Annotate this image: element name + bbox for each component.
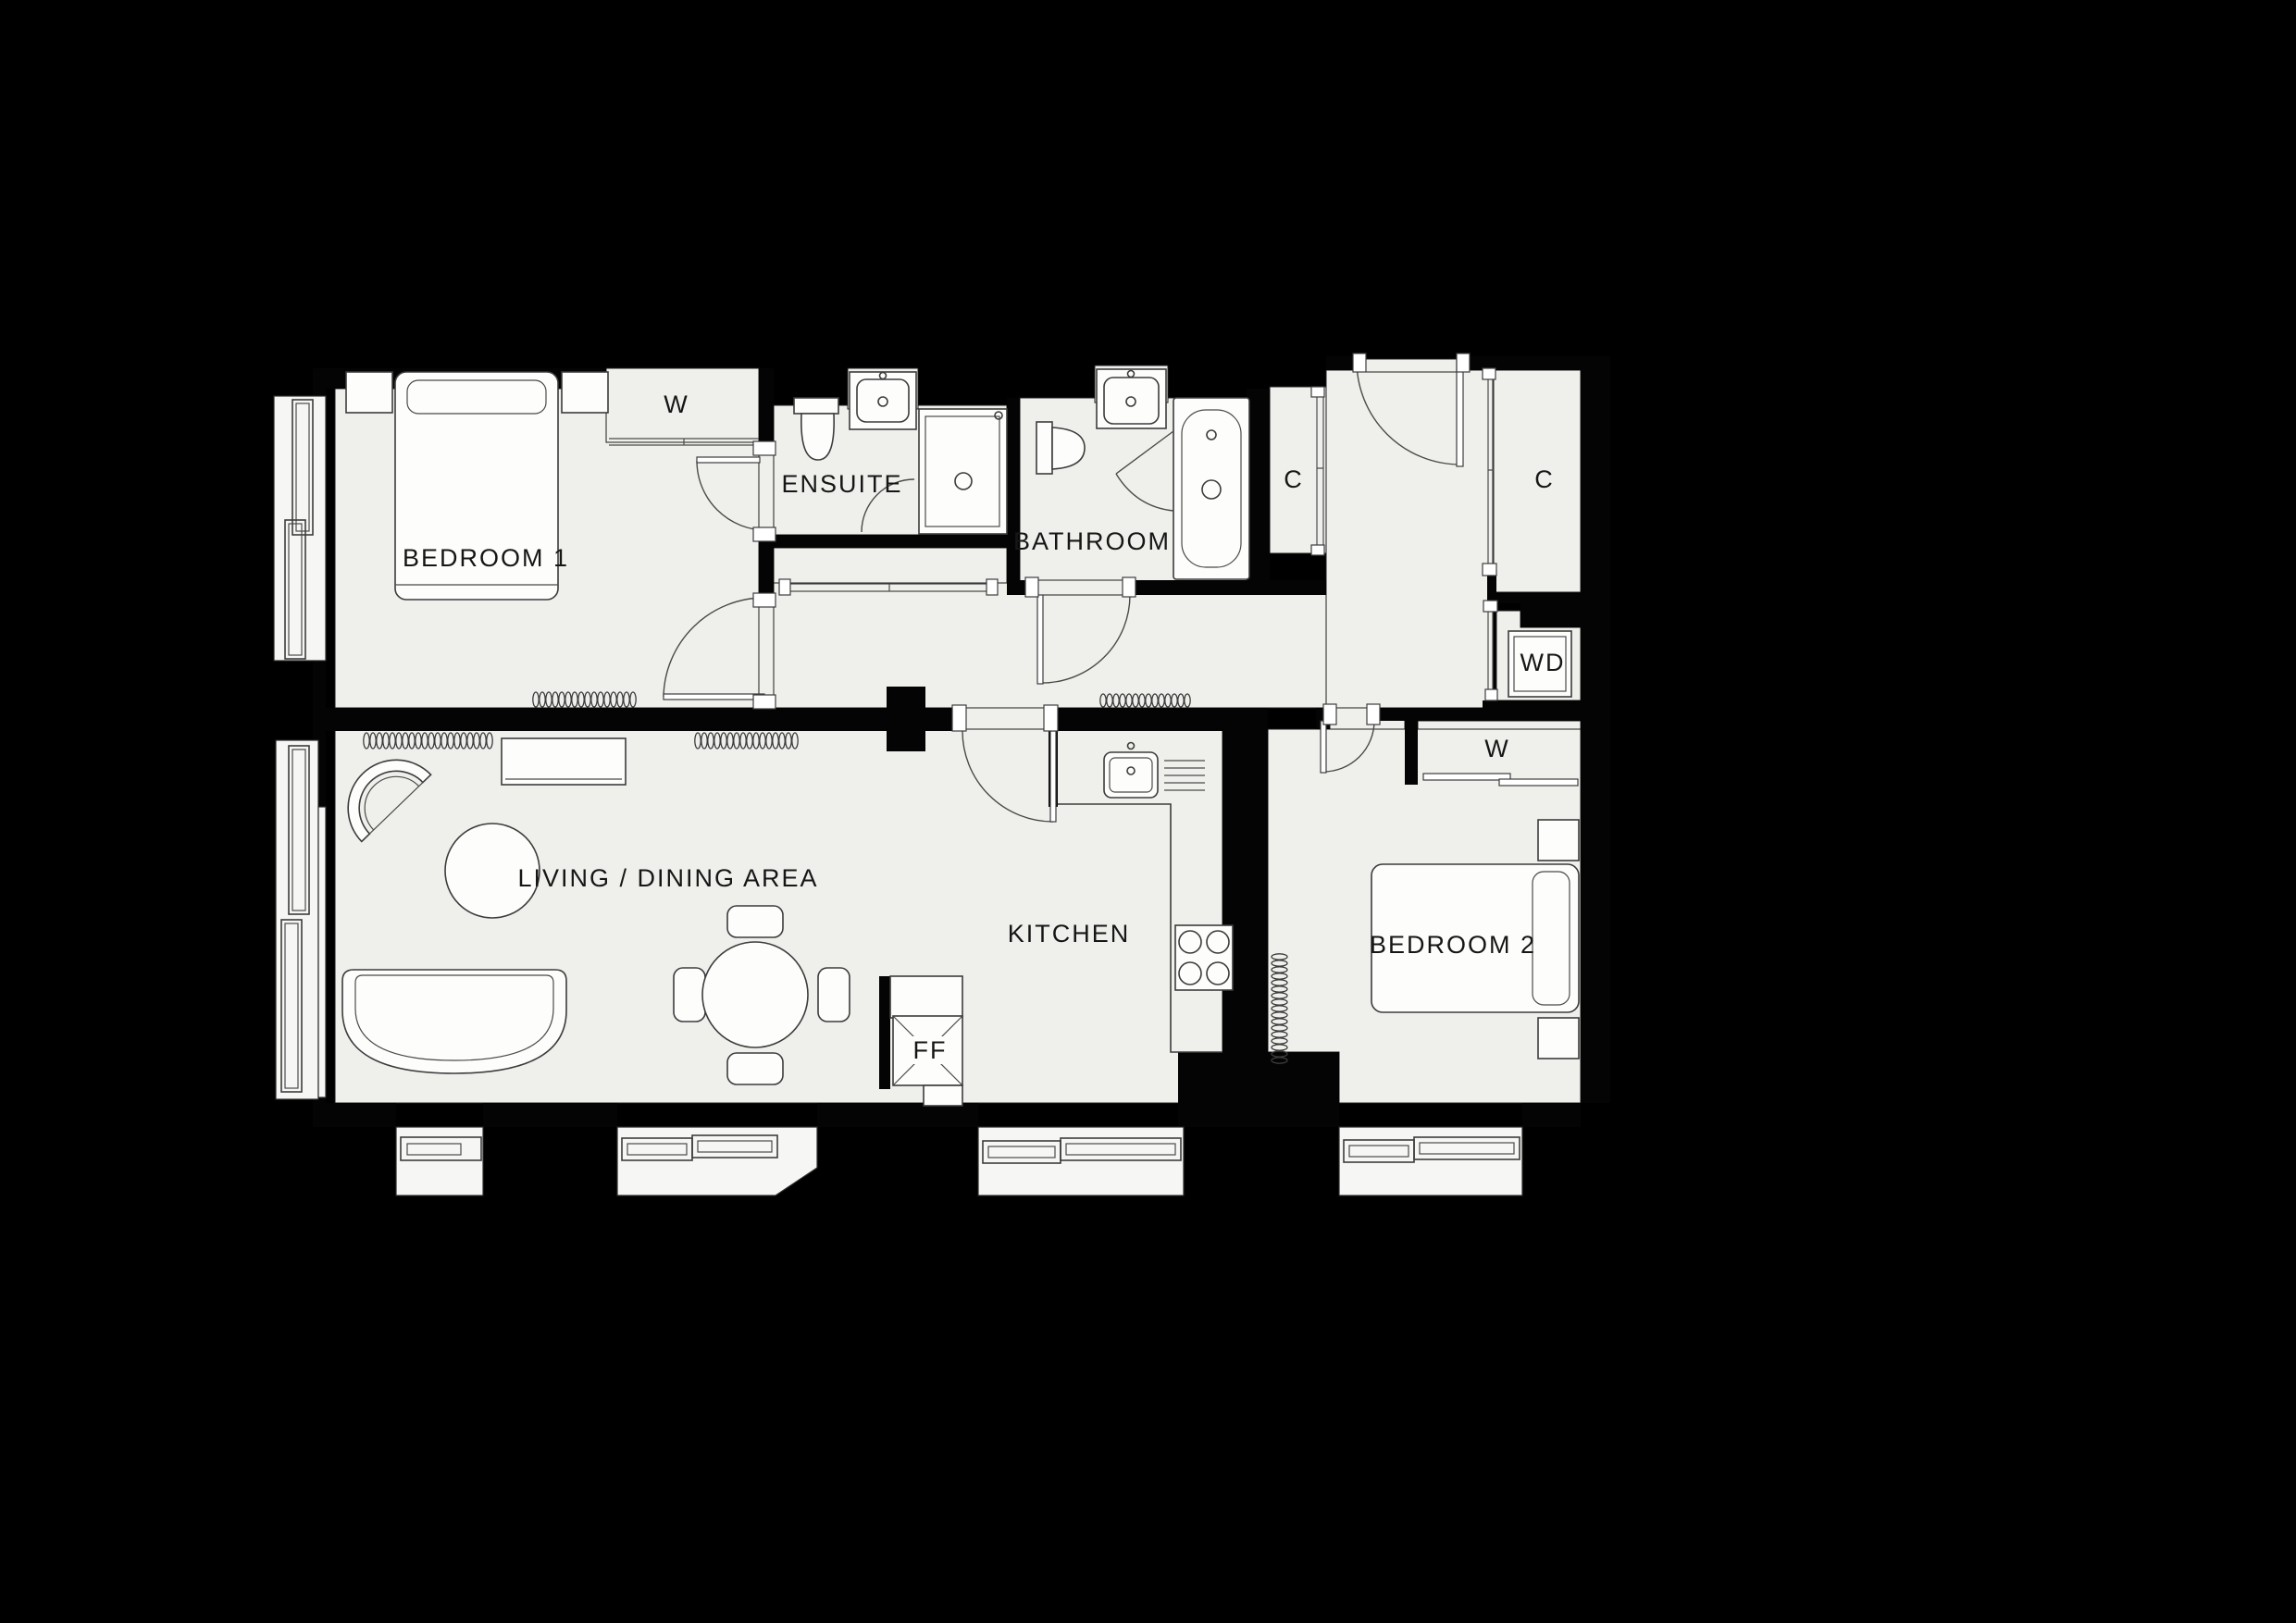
- bedroom2-label: BEDROOM 2: [1370, 931, 1536, 959]
- closet1-label: C: [1284, 465, 1304, 493]
- fridgefreezer-label: FF: [913, 1036, 948, 1064]
- wardrobe2-label: W: [1484, 735, 1509, 762]
- floor-plan-drawing: BEDROOM 1 ENSUITE BATHROOM LIVING / DINI…: [0, 0, 2296, 1623]
- kitchen-door-gap: [960, 708, 1049, 729]
- bedside-table-left: [346, 372, 392, 413]
- nightstand-bottom: [1538, 1018, 1579, 1059]
- south-hall-floor: [774, 583, 1326, 708]
- bedside-table-right: [562, 372, 608, 413]
- bedroom1-bay-window: [274, 396, 326, 661]
- living-label: LIVING / DINING AREA: [517, 864, 818, 892]
- bedroom1-label: BEDROOM 1: [403, 544, 569, 572]
- wardrobe1-label: W: [664, 390, 689, 418]
- sofa-symbol: [342, 970, 566, 1073]
- bedroom2-window: [1339, 1127, 1522, 1196]
- entry-hall-floor: [1326, 370, 1493, 708]
- washerdryer-label: WD: [1520, 649, 1566, 676]
- kitchen-label: KITCHEN: [1008, 920, 1131, 948]
- bedroom1-door-gap: [759, 606, 774, 699]
- entry-threshold: [1362, 359, 1462, 372]
- nightstand-top: [1538, 820, 1579, 861]
- bathroom-basin-symbol: [1097, 369, 1166, 428]
- floor-plan-page: BEDROOM 1 ENSUITE BATHROOM LIVING / DINI…: [0, 0, 2296, 1623]
- closet2-label: C: [1534, 465, 1555, 493]
- living-bay-window: [276, 740, 326, 1099]
- hob-symbol: [1175, 925, 1233, 990]
- ensuite-door-gap: [759, 455, 774, 529]
- bathroom-label: BATHROOM: [1013, 527, 1171, 555]
- living-window-left: [396, 1127, 483, 1196]
- sideboard-symbol: [502, 738, 626, 785]
- living-window-right: [617, 1127, 817, 1196]
- kitchen-window: [978, 1127, 1184, 1196]
- hall-cupboard-floor: [774, 548, 1007, 585]
- ensuite-basin-symbol: [850, 372, 916, 429]
- ensuite-label: ENSUITE: [781, 470, 902, 498]
- bathroom-door-gap: [1036, 580, 1130, 595]
